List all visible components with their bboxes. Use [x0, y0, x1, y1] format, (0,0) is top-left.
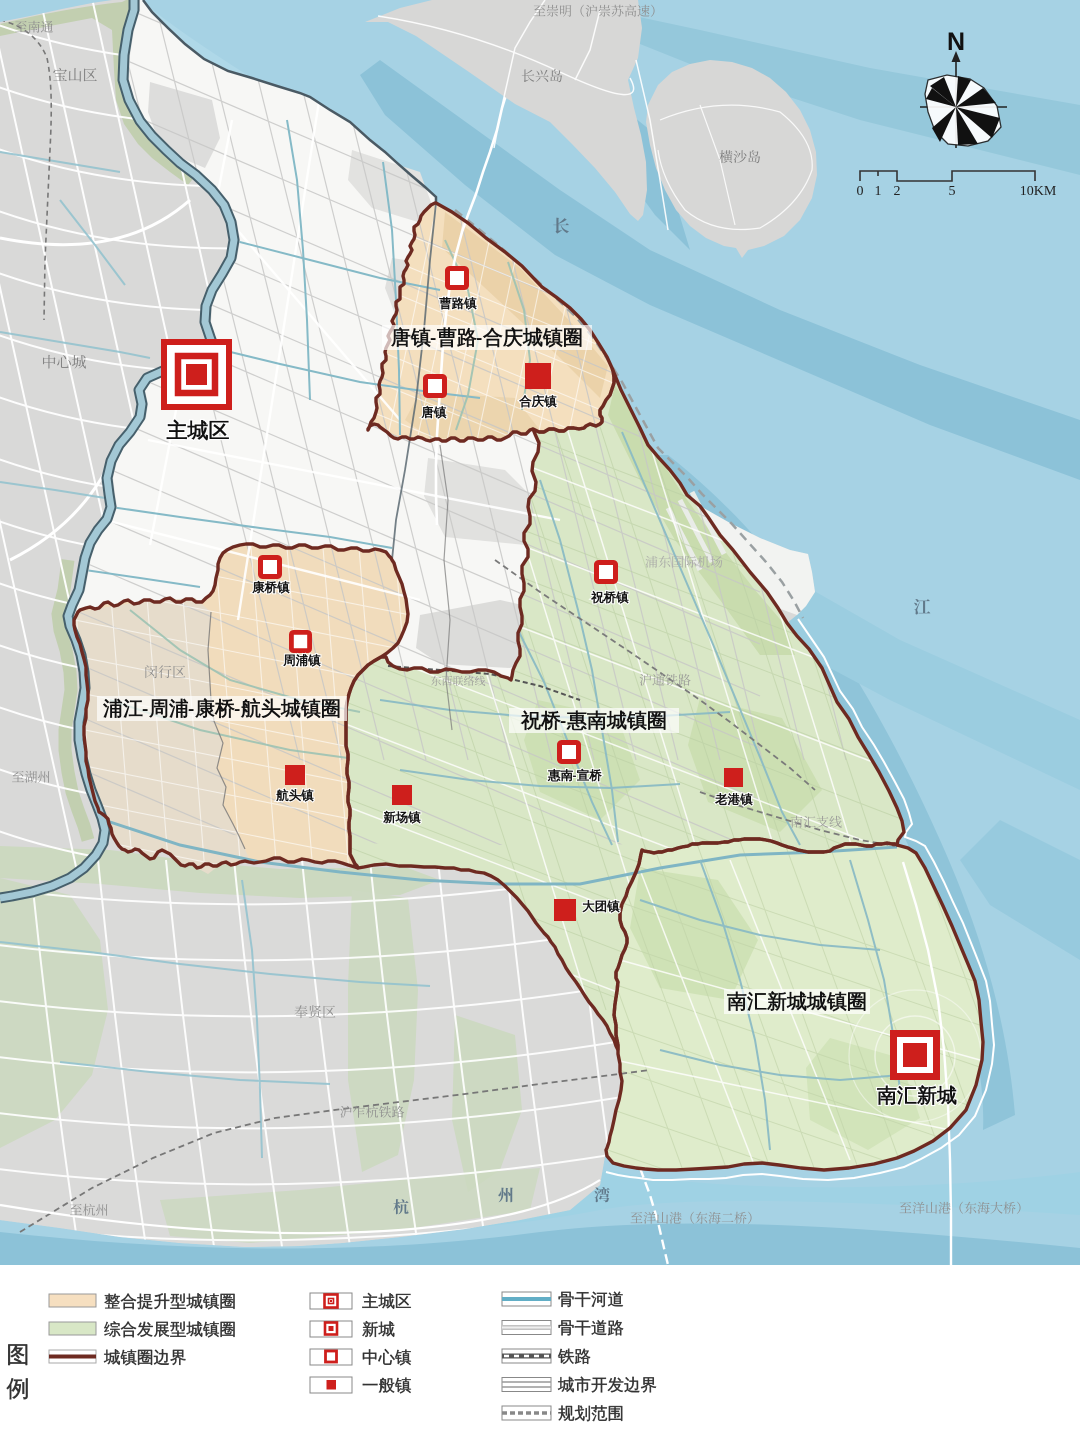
svg-text:5: 5	[949, 184, 956, 199]
svg-text:0: 0	[857, 184, 864, 199]
svg-text:10KM: 10KM	[1020, 184, 1057, 199]
svg-text:2: 2	[894, 184, 901, 199]
svg-text:1: 1	[875, 184, 882, 199]
svg-text:N: N	[947, 28, 965, 56]
